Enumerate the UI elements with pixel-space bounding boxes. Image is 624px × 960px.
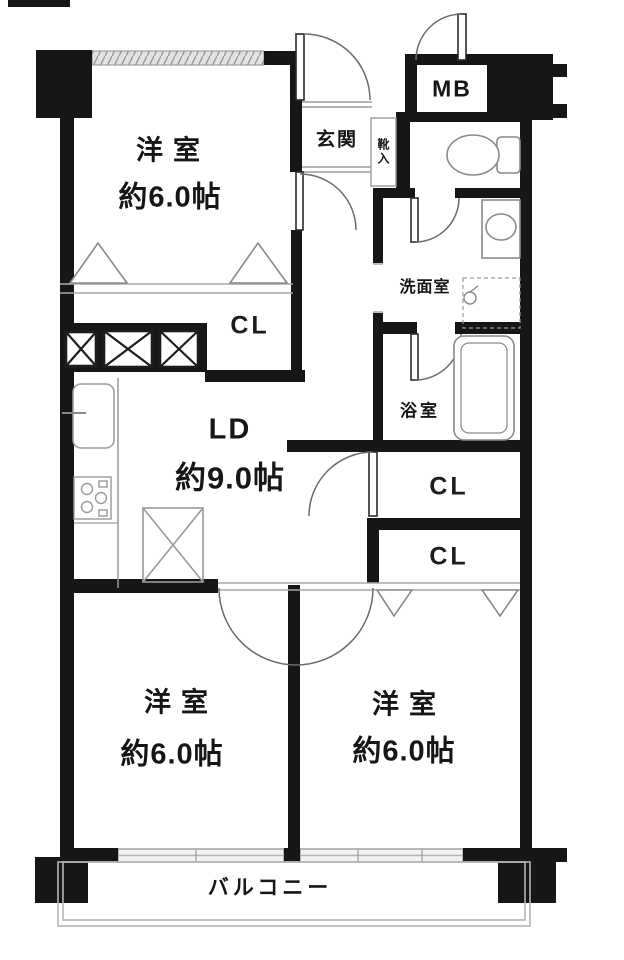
floorplan-drawing xyxy=(0,0,624,960)
toilet-door-arc xyxy=(415,198,459,242)
thin-partitions xyxy=(60,264,520,590)
ld-door-arc xyxy=(309,452,373,516)
room-label-closet-low: CL xyxy=(429,545,468,570)
pipe-space-boxes xyxy=(66,331,198,367)
ld-door-leaf xyxy=(369,452,377,516)
room-label-entrance: 玄関 xyxy=(316,131,358,150)
room-size-living-dining: 約9.0帖 xyxy=(175,463,285,494)
toilet-icon xyxy=(447,135,520,175)
room-label-balcony: バルコニー xyxy=(208,878,333,899)
room-label-washroom: 洗面室 xyxy=(399,280,450,296)
floorplan-canvas: 洋室 約6.0帖 玄関 靴入 MB 洗面室 浴室 CL CL CL LD 約9.… xyxy=(0,0,624,960)
vanity-sink-icon xyxy=(482,200,520,258)
x-square-icon xyxy=(143,508,203,582)
room-label-bedroom-bottom-left: 洋室 xyxy=(134,690,218,717)
bedroom1-door-leaf xyxy=(296,172,303,230)
room-label-closet-mid: CL xyxy=(429,475,468,500)
room-size-bedroom-bottom-right: 約6.0帖 xyxy=(352,738,455,767)
room-label-bedroom-bottom-right: 洋室 xyxy=(362,692,446,719)
room-label-bathroom: 浴室 xyxy=(400,403,440,420)
mb-door-arc xyxy=(416,14,462,60)
toilet-door-leaf xyxy=(411,198,418,242)
room-label-living-dining: LD xyxy=(209,416,252,445)
room-label-meter-box: MB xyxy=(432,78,472,101)
front-door-leaf xyxy=(296,34,304,100)
room-label-bedroom-top-left: 洋室 xyxy=(126,138,210,165)
room-size-bedroom-bottom-left: 約6.0帖 xyxy=(120,741,223,770)
walls xyxy=(8,0,567,903)
stove-icon xyxy=(74,477,111,519)
bedroom1-door-arc xyxy=(300,174,356,230)
laundry-space-icon xyxy=(463,278,520,328)
room-label-shoe-cabinet: 靴入 xyxy=(377,138,389,166)
bathtub-icon xyxy=(454,336,514,440)
window-bottom-left xyxy=(118,849,284,862)
room-label-closet-top: CL xyxy=(230,314,269,339)
room-size-bedroom-top-left: 約6.0帖 xyxy=(118,184,221,213)
front-door-arc xyxy=(304,34,370,100)
bath-door-leaf xyxy=(411,334,418,380)
window-top xyxy=(92,51,264,65)
window-bottom-right xyxy=(300,849,463,862)
mb-door-leaf xyxy=(458,14,466,60)
